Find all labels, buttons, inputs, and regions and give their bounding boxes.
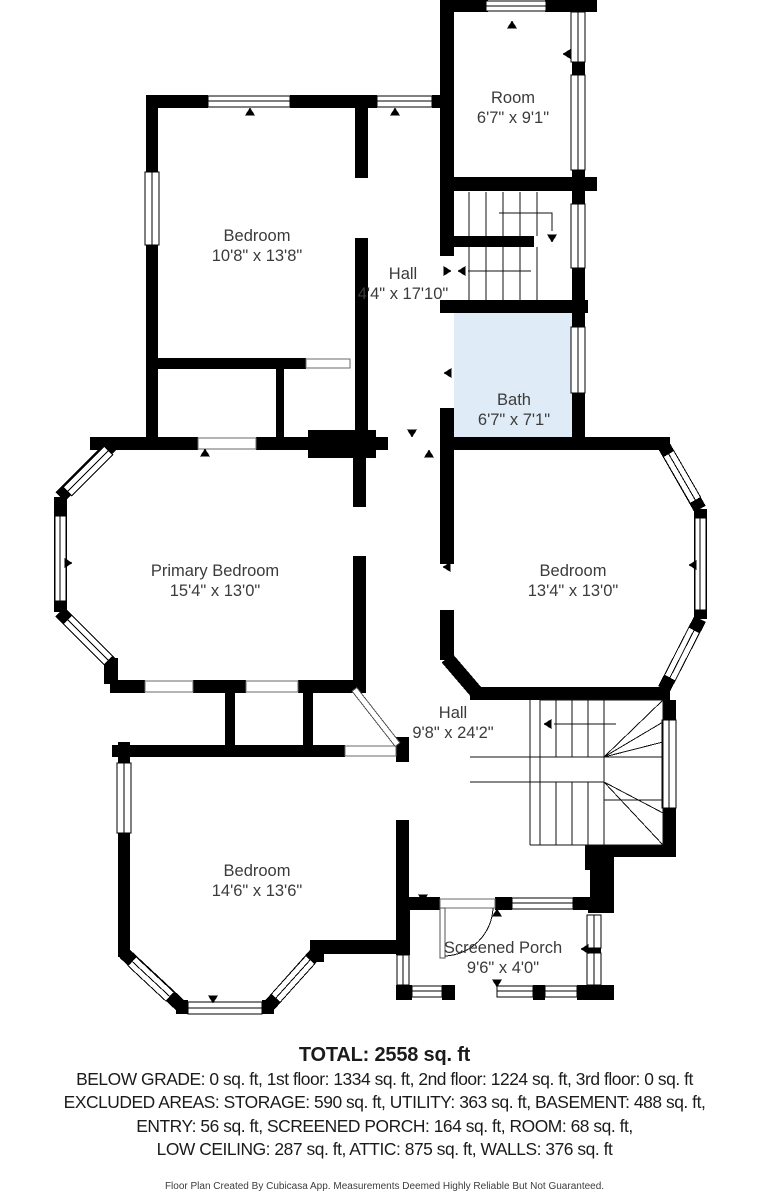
room-label-bedroom-right: Bedroom13'4" x 13'0" — [528, 561, 619, 601]
room-label-bedroom-bottom: Bedroom14'6" x 13'6" — [212, 861, 303, 901]
excluded-areas-text-3: LOW CEILING: 287 sq. ft, ATTIC: 875 sq. … — [0, 1138, 769, 1161]
staircase-winder — [470, 700, 663, 845]
room-label-hall-lower: Hall9'8" x 24'2" — [412, 703, 493, 743]
floor-areas-text: BELOW GRADE: 0 sq. ft, 1st floor: 1334 s… — [0, 1068, 769, 1091]
room-label-hall-upper: Hall4'4" x 17'10" — [358, 264, 449, 304]
excluded-areas-text: EXCLUDED AREAS: STORAGE: 590 sq. ft, UTI… — [0, 1091, 769, 1114]
room-label-bedroom-top: Bedroom10'8" x 13'8" — [212, 226, 303, 266]
room-label-screened-porch: Screened Porch9'6" x 4'0" — [444, 938, 562, 978]
total-area-text: TOTAL: 2558 sq. ft — [0, 1042, 769, 1068]
floor-plan-page: Room6'7" x 9'1" Bedroom10'8" x 13'8" Hal… — [0, 0, 769, 1198]
excluded-areas-text-2: ENTRY: 56 sq. ft, SCREENED PORCH: 164 sq… — [0, 1115, 769, 1138]
area-summary: TOTAL: 2558 sq. ft BELOW GRADE: 0 sq. ft… — [0, 1042, 769, 1162]
room-label-primary-bedroom: Primary Bedroom15'4" x 13'0" — [151, 561, 279, 601]
room-label-bath: Bath6'7" x 7'1" — [478, 390, 550, 430]
floor-plan-drawing — [0, 0, 769, 1040]
disclaimer-text: Floor Plan Created By Cubicasa App. Meas… — [0, 1181, 769, 1192]
room-label-room: Room6'7" x 9'1" — [477, 88, 549, 128]
